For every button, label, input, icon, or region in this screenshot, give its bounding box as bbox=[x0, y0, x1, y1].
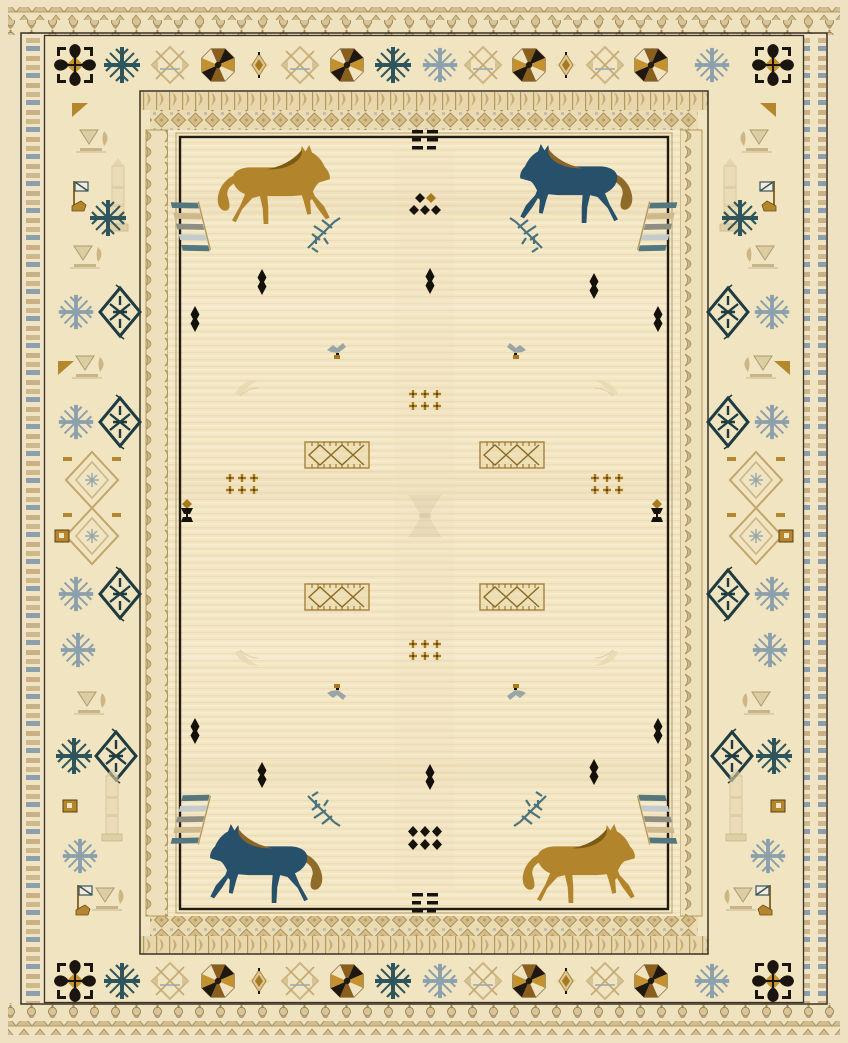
molding-band-bottom bbox=[140, 936, 708, 954]
border-motif-rosette-gold-glyph bbox=[513, 965, 545, 997]
border-motif-rosette-gold bbox=[635, 49, 667, 81]
tick-band-right bbox=[804, 34, 826, 1003]
border-motif-rosette-gold bbox=[202, 965, 234, 997]
mosaic-band-bottom bbox=[150, 916, 698, 936]
molding-band-top bbox=[140, 92, 708, 110]
border-motif-rosette-gold bbox=[513, 965, 545, 997]
border-motif-sq-gold-glyph bbox=[779, 530, 793, 542]
border-motif-rosette-gold bbox=[331, 49, 363, 81]
border-motif-sq-gold bbox=[55, 530, 69, 542]
border-motif-sq-gold bbox=[771, 800, 785, 812]
border-motif-rosette-gold-glyph bbox=[635, 49, 667, 81]
field-motif-lattice bbox=[480, 584, 544, 610]
field-motif-lattice-glyph bbox=[480, 442, 544, 468]
field-motif-lattice bbox=[305, 442, 369, 468]
acorn-band-bottom bbox=[8, 1003, 840, 1018]
border-motif-rosette-gold-glyph bbox=[202, 965, 234, 997]
outer-zigzag-band-bottom bbox=[8, 1021, 840, 1035]
leaf-column-left bbox=[146, 130, 168, 916]
border-motif-rosette-gold-glyph bbox=[331, 49, 363, 81]
outer-zigzag-band-top bbox=[8, 7, 840, 20]
border-motif-rosette-gold bbox=[202, 49, 234, 81]
border-motif-rosette-gold-glyph bbox=[513, 49, 545, 81]
tick-band-left bbox=[22, 34, 44, 1003]
border-motif-rosette-gold-glyph bbox=[202, 49, 234, 81]
border-motif-rosette-gold-glyph bbox=[635, 965, 667, 997]
border-motif-sq-gold-glyph bbox=[771, 800, 785, 812]
rug-screenshot: Cream kilim-style area rug with four hor… bbox=[0, 0, 848, 1043]
border-motif-sq-gold-glyph bbox=[55, 530, 69, 542]
field-motif-lattice bbox=[480, 442, 544, 468]
border-motif-sq-gold bbox=[63, 800, 77, 812]
border-motif-rosette-gold bbox=[635, 965, 667, 997]
border-motif-rosette-gold-glyph bbox=[331, 965, 363, 997]
field-motif-lattice-glyph bbox=[480, 584, 544, 610]
field-motif-lattice bbox=[305, 584, 369, 610]
field-motif-lattice-glyph bbox=[305, 584, 369, 610]
border-motif-rosette-gold bbox=[331, 965, 363, 997]
field-motif-lattice-glyph bbox=[305, 442, 369, 468]
border-motif-sq-gold bbox=[779, 530, 793, 542]
border-motif-rosette-gold bbox=[513, 49, 545, 81]
leaf-column-right bbox=[680, 130, 702, 916]
border-motif-sq-gold-glyph bbox=[63, 800, 77, 812]
mosaic-band-top bbox=[150, 110, 698, 130]
rug-vector bbox=[0, 0, 848, 1043]
